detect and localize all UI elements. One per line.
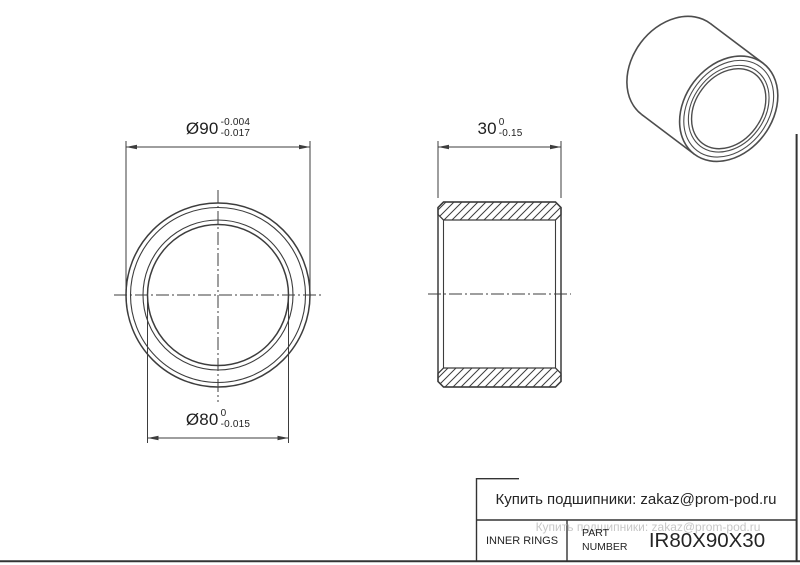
dimension-width xyxy=(438,141,561,198)
tolerance-stack: 0 -0.15 xyxy=(499,117,523,139)
drawing-page: Ø90 -0.004 -0.017 Ø80 0 -0.015 30 0 -0.1… xyxy=(0,0,800,565)
section-top-band xyxy=(438,202,561,220)
arrowhead xyxy=(126,145,137,150)
bore-diameter-dimension-label: Ø80 0 -0.015 xyxy=(118,406,318,434)
tolerance-upper: 0 xyxy=(221,408,251,419)
arrowhead xyxy=(278,436,289,441)
tolerance-upper: 0 xyxy=(499,117,523,128)
front-view-centerlines xyxy=(114,190,322,402)
arrowhead xyxy=(550,145,561,150)
dimension-value: 30 xyxy=(477,119,496,139)
dimension-value: Ø90 xyxy=(186,119,219,139)
isometric-view xyxy=(607,0,799,181)
tolerance-lower: -0.017 xyxy=(221,128,251,139)
tolerance-upper: -0.004 xyxy=(221,117,251,128)
part-number-label-line1: PART xyxy=(582,527,609,541)
section-view xyxy=(428,202,571,387)
tolerance-stack: -0.004 -0.017 xyxy=(221,117,251,139)
outer-diameter-dimension-label: Ø90 -0.004 -0.017 xyxy=(118,115,318,143)
arrowhead xyxy=(438,145,449,150)
tolerance-lower: -0.15 xyxy=(499,128,523,139)
dimension-value: Ø80 xyxy=(186,410,219,430)
contact-line: Купить подшипники: zakaz@prom-pod.ru xyxy=(477,480,795,518)
section-bottom-band xyxy=(438,368,561,387)
tolerance-stack: 0 -0.015 xyxy=(221,408,251,430)
arrowhead xyxy=(148,436,159,441)
front-view xyxy=(114,190,322,402)
part-number-value: IR80X90X30 xyxy=(618,520,796,561)
category-label: INNER RINGS xyxy=(477,520,567,561)
arrowhead xyxy=(299,145,310,150)
tolerance-lower: -0.015 xyxy=(221,419,251,430)
width-dimension-label: 30 0 -0.15 xyxy=(400,115,600,143)
